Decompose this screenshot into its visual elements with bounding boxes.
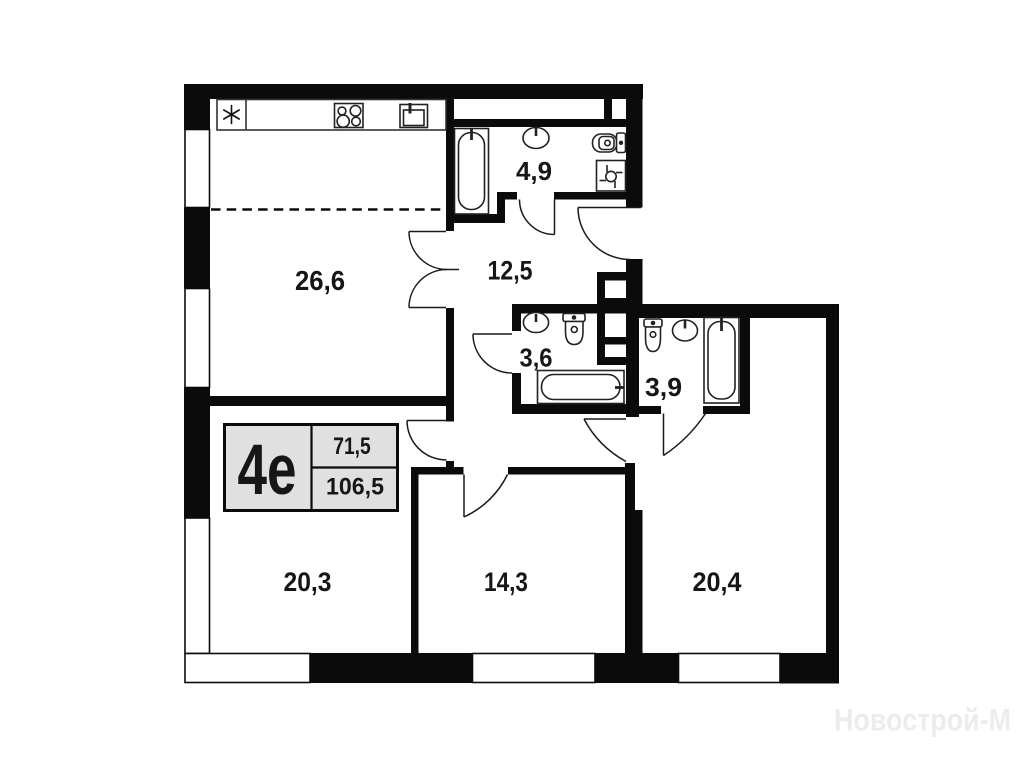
svg-text:106,5: 106,5 <box>326 474 384 501</box>
svg-text:4,9: 4,9 <box>516 156 552 186</box>
svg-text:3,9: 3,9 <box>645 374 682 402</box>
svg-text:Новострой-М: Новострой-М <box>834 702 1011 738</box>
svg-text:71,5: 71,5 <box>333 433 371 460</box>
svg-text:14,3: 14,3 <box>484 567 528 597</box>
svg-text:3,6: 3,6 <box>520 345 553 373</box>
svg-text:4е: 4е <box>238 431 297 510</box>
svg-text:20,4: 20,4 <box>693 567 742 597</box>
svg-text:26,6: 26,6 <box>295 265 345 296</box>
svg-text:12,5: 12,5 <box>488 256 533 286</box>
svg-text:20,3: 20,3 <box>284 567 332 597</box>
